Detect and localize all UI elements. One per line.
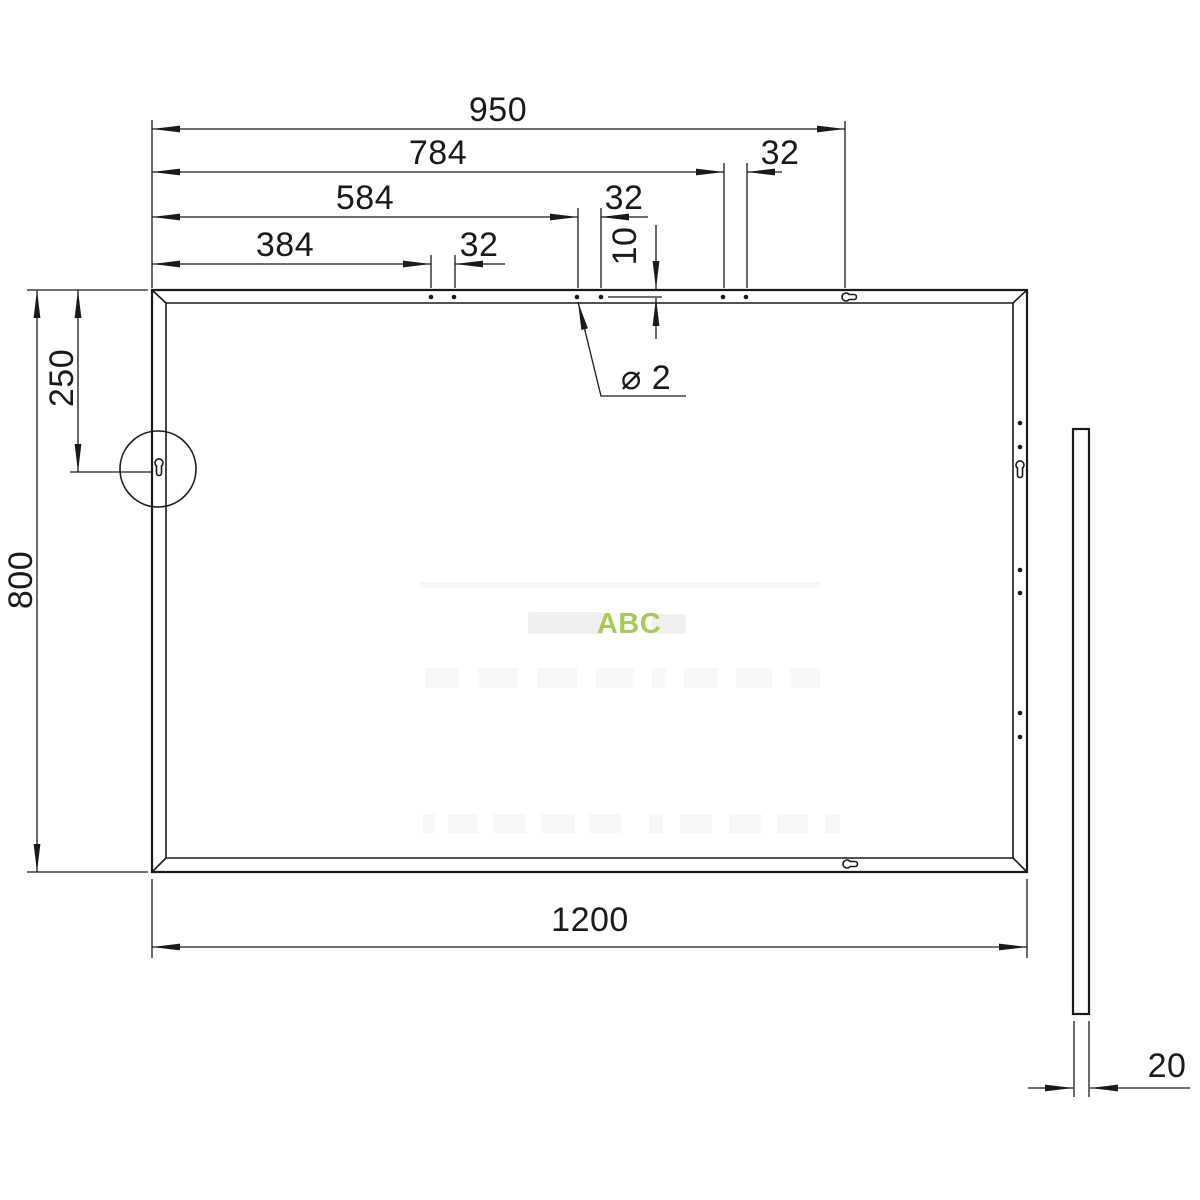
dim-784: 784 32 (152, 134, 799, 288)
dim-32-label: 32 (460, 226, 499, 264)
keyhole-slot-top (842, 293, 857, 301)
mounting-hole (429, 295, 434, 300)
side-view-outline (1073, 429, 1089, 1014)
mounting-hole (1018, 568, 1023, 573)
dim-1200: 1200 (152, 879, 1027, 958)
front-view-inner-edge (166, 303, 1013, 858)
mounting-hole (575, 295, 580, 300)
mounting-hole (599, 295, 604, 300)
watermark-blur-text (528, 612, 604, 634)
keyhole-slot-right (1016, 461, 1024, 478)
dim-800-label: 800 (2, 551, 40, 609)
dim-32-label: 32 (605, 179, 644, 217)
dim-584-label: 584 (336, 179, 394, 217)
technical-drawing: ABC (0, 0, 1200, 1200)
left-dimensions: 800 250 (2, 290, 152, 872)
dim-250-label: 250 (43, 349, 81, 407)
corner-miter-bottom-left (152, 858, 166, 872)
dim-20: 20 (1028, 1021, 1190, 1097)
corner-miter-top-right (1013, 290, 1027, 303)
dim-1200-label: 1200 (551, 901, 629, 939)
dim-32-label: 32 (761, 134, 800, 172)
corner-miter-bottom-right (1013, 858, 1027, 872)
top-edge-holes (429, 295, 749, 300)
mounting-hole (721, 295, 726, 300)
dim-784-label: 784 (409, 134, 467, 172)
mounting-hole (1018, 711, 1023, 716)
mounting-hole (1018, 735, 1023, 740)
keyhole-slot-left (155, 459, 163, 476)
dim-250: 250 (43, 290, 152, 472)
hole-diameter-callout: ⌀ 2 (578, 302, 686, 397)
mounting-hole (452, 295, 457, 300)
side-view: 20 (1028, 429, 1190, 1097)
dim-384-label: 384 (256, 226, 314, 264)
front-view (120, 290, 1027, 872)
watermark-brand-text: ABC (597, 608, 661, 640)
dim-20-label: 20 (1148, 1047, 1187, 1085)
dim-10: 10 (606, 225, 662, 339)
mounting-hole (744, 295, 749, 300)
watermark: ABC (420, 582, 840, 833)
hole-diameter-label: ⌀ 2 (621, 359, 671, 397)
dim-800: 800 (2, 290, 40, 872)
keyhole-slot-bottom (843, 860, 858, 868)
mounting-hole (1018, 591, 1023, 596)
watermark-blur-row (425, 668, 820, 688)
front-view-outer-edge (152, 290, 1027, 872)
watermark-blur-row (423, 814, 840, 833)
dim-384: 384 32 (152, 226, 505, 288)
dim-584: 584 32 (152, 179, 648, 288)
watermark-blur-row (420, 582, 820, 588)
dim-950-label: 950 (469, 91, 527, 129)
corner-miter-top-left (152, 290, 166, 303)
mounting-hole (1018, 445, 1023, 450)
dim-10-label: 10 (606, 227, 644, 266)
mounting-hole (1018, 421, 1023, 426)
top-dimensions: 950 784 32 584 32 384 32 (152, 91, 845, 397)
